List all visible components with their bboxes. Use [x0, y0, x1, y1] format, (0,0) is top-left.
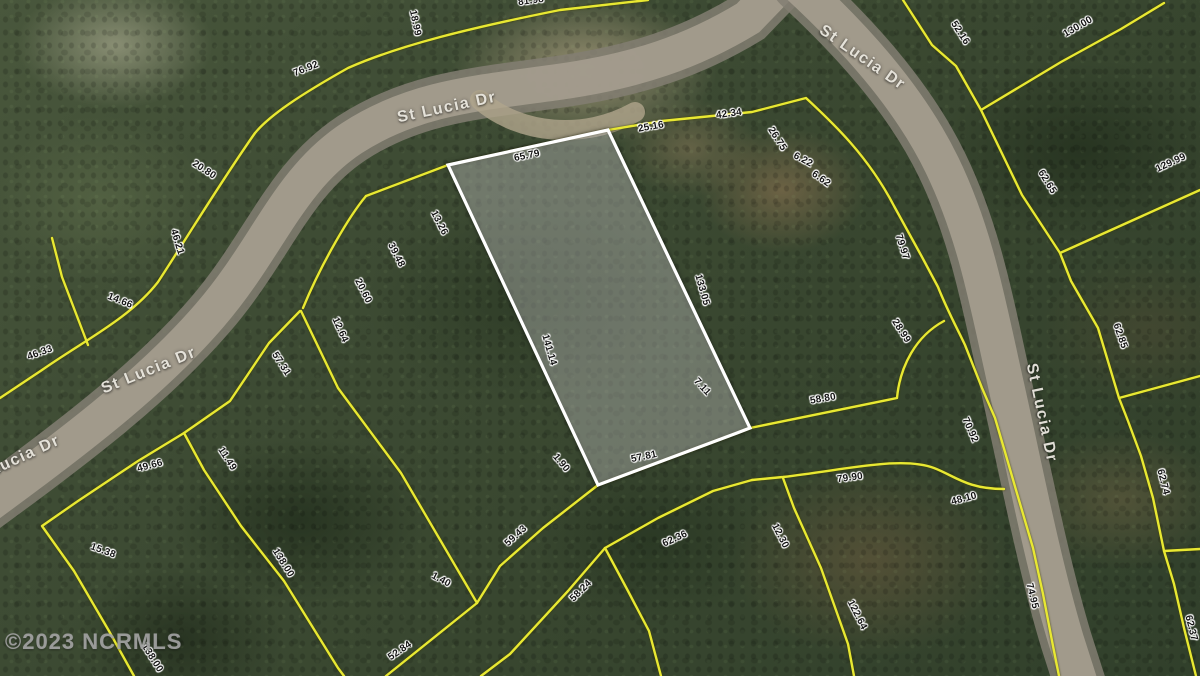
satellite-parcel-map: St Lucia DrSt Lucia DrSt Lucia DrLucia D…	[0, 0, 1200, 676]
dimension-label: 76.92	[292, 59, 320, 79]
dimension-label: 130.00	[1061, 14, 1094, 39]
dimension-label: 12.64	[330, 316, 351, 344]
dimension-label: 39.48	[385, 241, 407, 269]
dimension-label: 58.80	[809, 391, 837, 406]
dimension-label: 7.11	[691, 376, 712, 398]
dimension-label: 74.95	[1024, 582, 1041, 610]
dimension-label: 59.43	[503, 523, 530, 549]
dimension-label: 129.99	[1154, 151, 1187, 174]
dimension-label: 11.49	[215, 445, 238, 472]
dimension-label: 62.74	[1155, 468, 1172, 496]
dimension-label: 52.84	[386, 639, 414, 663]
dimension-label: 28.99	[889, 317, 912, 345]
label-layer: St Lucia DrSt Lucia DrSt Lucia DrLucia D…	[0, 0, 1200, 676]
dimension-label: 6.62	[810, 169, 833, 190]
dimension-label: 62.36	[661, 529, 689, 550]
street-name-label: Lucia Dr	[0, 432, 63, 480]
dimension-label: 62.37	[1183, 614, 1200, 642]
dimension-label: 133.05	[692, 273, 711, 307]
dimension-label: 49.66	[136, 457, 164, 474]
dimension-label: 46.21	[168, 228, 186, 256]
street-name-label: St Lucia Dr	[815, 22, 908, 95]
dimension-label: 20.80	[190, 158, 218, 181]
street-name-label: St Lucia Dr	[396, 89, 499, 128]
dimension-label: 15.38	[89, 541, 117, 560]
dimension-label: 58.24	[568, 578, 594, 604]
dimension-label: 62.85	[1111, 322, 1130, 350]
street-name-label: St Lucia Dr	[1022, 362, 1061, 465]
dimension-label: 42.34	[715, 107, 742, 122]
dimension-label: 18.99	[407, 9, 423, 37]
dimension-label: 57.81	[630, 449, 658, 465]
dimension-label: 12.30	[769, 522, 791, 550]
dimension-label: 62.65	[1035, 168, 1058, 196]
dimension-label: 1.40	[429, 570, 452, 589]
dimension-label: 141.14	[539, 333, 558, 367]
dimension-label: 48.10	[950, 490, 978, 507]
dimension-label: 79.90	[836, 471, 863, 486]
dimension-label: 46.33	[26, 343, 54, 362]
dimension-label: 79.97	[893, 233, 912, 261]
dimension-label: 81.98	[517, 0, 544, 8]
dimension-label: 70.92	[960, 416, 981, 444]
street-name-label: St Lucia Dr	[99, 344, 199, 399]
dimension-label: 52.16	[948, 19, 971, 47]
dimension-label: 1.90	[550, 452, 571, 475]
dimension-label: 14.66	[106, 291, 134, 311]
dimension-label: 122.64	[845, 598, 869, 631]
dimension-label: 13.26	[428, 209, 450, 237]
dimension-label: 25.16	[637, 119, 665, 134]
dimension-label: 26.75	[765, 125, 788, 153]
mls-watermark: ©2023 NCRMLS	[5, 629, 182, 655]
dimension-label: 138.00	[270, 547, 296, 580]
dimension-label: 57.31	[269, 350, 292, 378]
dimension-label: 65.79	[513, 148, 541, 164]
dimension-label: 20.60	[352, 277, 374, 305]
dimension-label: 6.22	[791, 150, 814, 169]
